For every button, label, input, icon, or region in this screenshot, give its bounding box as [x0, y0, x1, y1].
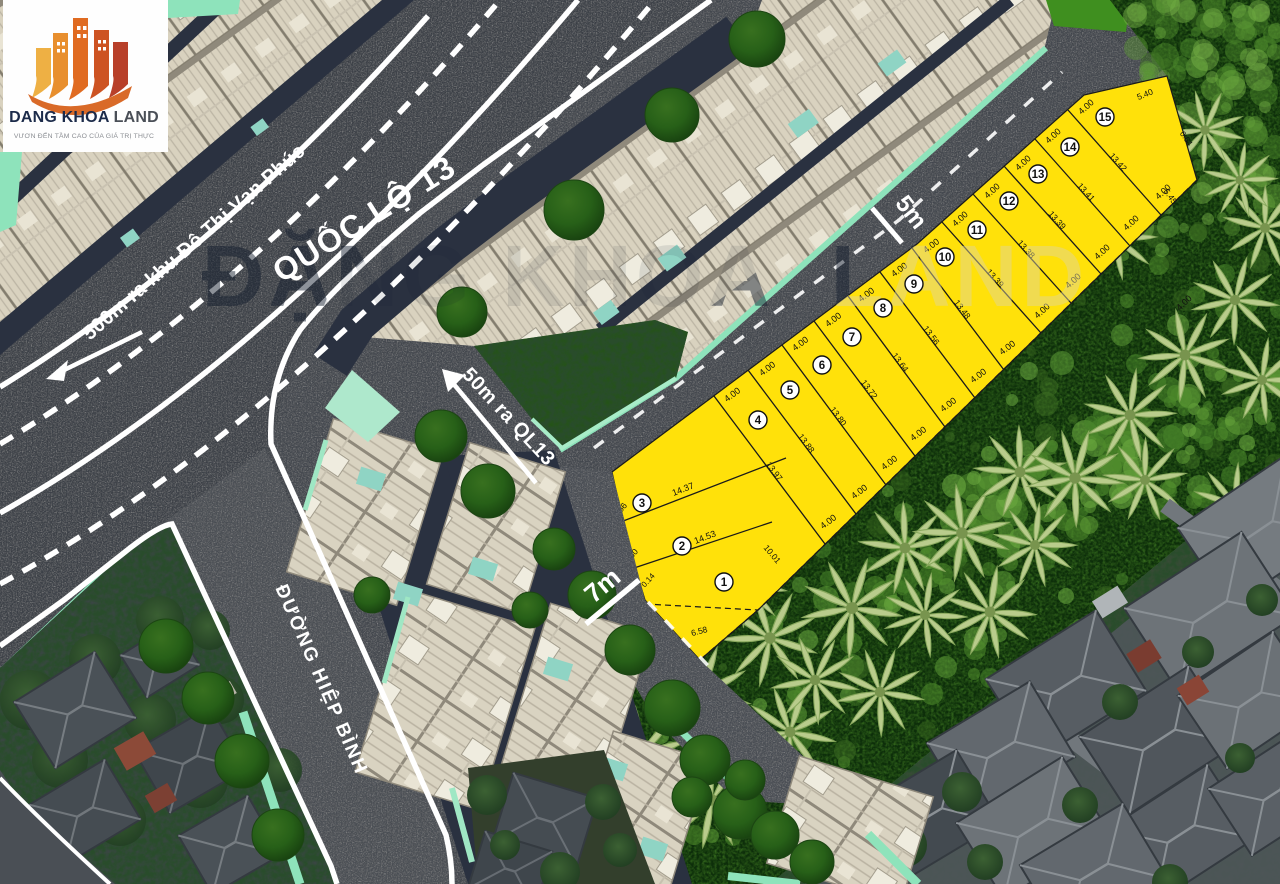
svg-text:7: 7: [849, 332, 855, 344]
svg-text:DANG KHOA LAND: DANG KHOA LAND: [9, 109, 159, 126]
svg-text:8: 8: [880, 303, 887, 315]
svg-text:3: 3: [639, 498, 645, 510]
svg-text:5: 5: [787, 385, 794, 397]
svg-text:13: 13: [1032, 169, 1045, 181]
svg-text:12: 12: [1003, 196, 1016, 208]
svg-text:9: 9: [911, 279, 917, 291]
svg-text:1: 1: [721, 577, 728, 589]
svg-text:15: 15: [1099, 112, 1112, 124]
svg-text:14: 14: [1064, 142, 1077, 154]
svg-text:4: 4: [755, 415, 762, 427]
svg-text:10: 10: [939, 252, 952, 264]
svg-text:11: 11: [971, 225, 984, 237]
svg-text:6: 6: [819, 360, 825, 372]
svg-text:2: 2: [679, 541, 685, 553]
